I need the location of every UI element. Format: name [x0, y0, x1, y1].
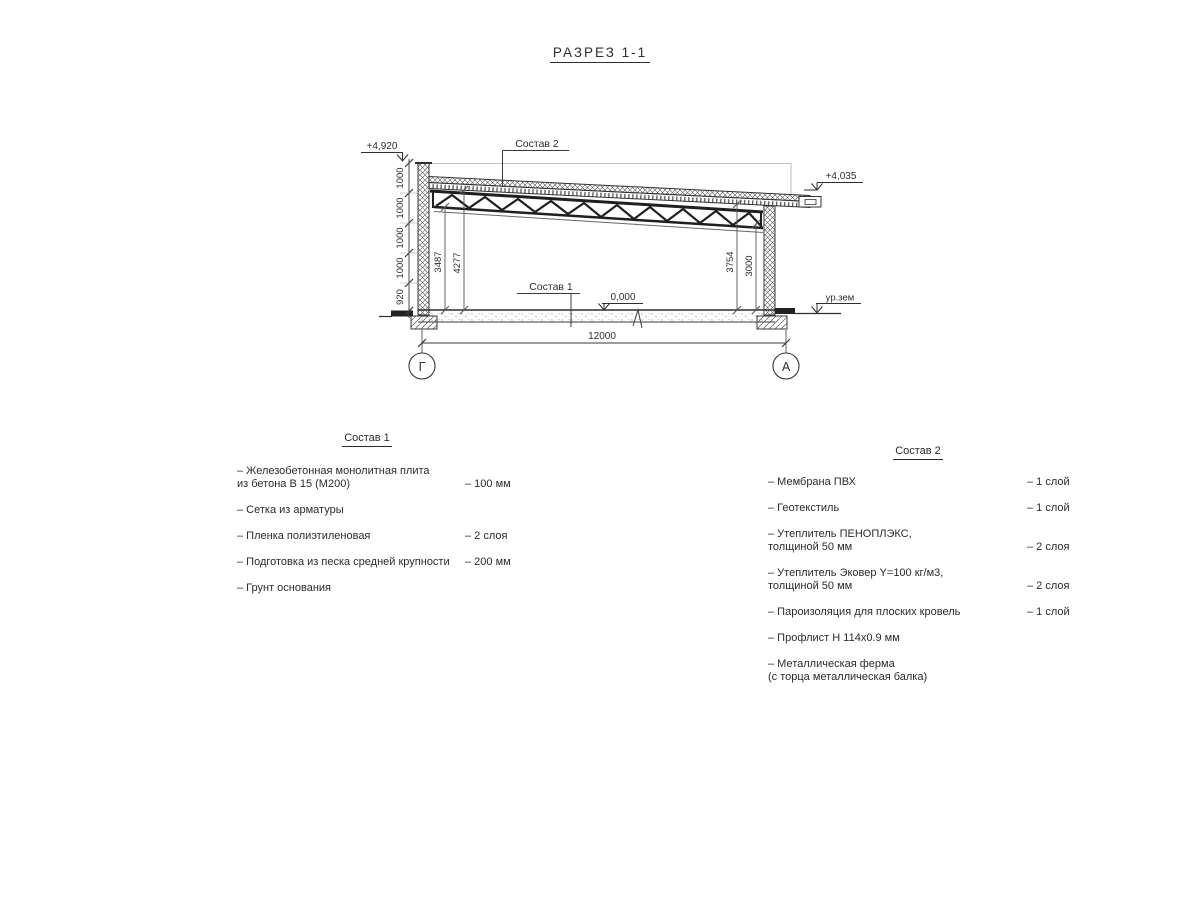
composition-2-header: Состав 2: [768, 445, 1068, 458]
item-value: – 200 мм: [465, 556, 521, 569]
item-text: – Пленка полиэтиленовая: [237, 530, 465, 543]
item-value: – 2 слоя: [1027, 541, 1070, 554]
dim-interior-3487: 3487: [433, 251, 444, 272]
composition-1-title: Состав 1: [342, 432, 392, 447]
ground-ledge-left: [391, 311, 413, 317]
list-item: – Пароизоляция для плоских кровель – 1 с…: [768, 606, 1070, 619]
item-text: – Утеплитель ПЕНОПЛЭКС,: [768, 528, 1027, 541]
item-text: – Пароизоляция для плоских кровель: [768, 606, 1027, 619]
drawing-sheet: РАЗРЕЗ 1-1: [0, 0, 1200, 900]
list-item: – Подготовка из песка средней крупности …: [237, 556, 523, 569]
list-item: – Сетка из арматуры: [237, 504, 523, 517]
list-item: – Пленка полиэтиленовая – 2 слоя: [237, 530, 523, 543]
item-text: – Профлист Н 114х0.9 мм: [768, 632, 1027, 645]
axis-bubble-left: Г: [409, 353, 435, 379]
list-item: – Железобетонная монолитная плита из бет…: [237, 465, 523, 491]
span-dimension: 12000: [418, 330, 790, 353]
section-drawing: 1000 1000 1000 1000 920 3487 4277 3754 3…: [0, 0, 1200, 420]
item-text: – Мембрана ПВХ: [768, 476, 1027, 489]
ground-level-label: ур.зем: [826, 293, 855, 304]
ground-level-mark: ур.зем: [812, 293, 862, 314]
elevation-top-right-label: +4,035: [826, 171, 857, 182]
dim-interior-3000: 3000: [744, 255, 755, 276]
list-item: – Геотекстиль – 1 слой: [768, 502, 1070, 515]
footing-right: [757, 316, 787, 329]
list-item: – Металлическая ферма (с торца металличе…: [768, 658, 1070, 684]
composition-2-title: Состав 2: [893, 445, 943, 460]
item-text: – Металлическая ферма: [768, 658, 1027, 671]
composition-1-list: Состав 1 – Железобетонная монолитная пли…: [237, 432, 523, 608]
list-item: – Грунт основания: [237, 582, 523, 595]
ground-ledge-right: [775, 308, 795, 314]
dim-left-5: 920: [395, 289, 406, 305]
elevation-top-left-label: +4,920: [367, 141, 398, 152]
interior-dimensions: 3487 4277 3754 3000: [433, 186, 760, 314]
item-value: – 100 мм: [465, 478, 521, 491]
right-wall: [764, 206, 775, 315]
item-text: толщиной 50 мм: [768, 541, 1027, 554]
dim-left-2: 1000: [395, 197, 406, 218]
dim-interior-4277: 4277: [452, 252, 463, 273]
roof-edge-beam: [799, 197, 821, 208]
item-text: из бетона В 15 (М200): [237, 478, 465, 491]
item-value: – 1 слой: [1027, 502, 1070, 515]
item-text: – Грунт основания: [237, 582, 465, 595]
item-text: – Утеплитель Эковер Y=100 кг/м3,: [768, 567, 1027, 580]
elevation-floor-label: 0,000: [610, 292, 635, 303]
axis-right-label: А: [782, 360, 791, 374]
elevation-mark-top-left: +4,920: [361, 141, 408, 161]
callout-floor-label: Состав 1: [529, 281, 573, 293]
elevation-mark-top-right: +4,035: [804, 171, 863, 190]
dimension-chain-left: 1000 1000 1000 1000 920: [395, 159, 418, 318]
item-text: толщиной 50 мм: [768, 580, 1027, 593]
callout-roof-label: Состав 2: [515, 138, 559, 150]
dim-left-3: 1000: [395, 227, 406, 248]
item-text: (с торца металлическая балка): [768, 671, 1027, 684]
item-value: – 2 слоя: [465, 530, 521, 543]
item-value: – 1 слой: [1027, 476, 1070, 489]
item-value: – 2 слоя: [1027, 580, 1070, 593]
axis-bubble-right: А: [773, 353, 799, 379]
dim-interior-3754: 3754: [725, 251, 736, 272]
composition-2-list: Состав 2 – Мембрана ПВХ – 1 слой – Геоте…: [768, 445, 1070, 697]
list-item: – Профлист Н 114х0.9 мм: [768, 632, 1070, 645]
floor-slab: [418, 310, 775, 328]
item-text: – Железобетонная монолитная плита: [237, 465, 465, 478]
list-item: – Утеплитель ПЕНОПЛЭКС, толщиной 50 мм –…: [768, 528, 1070, 554]
footing-left: [411, 316, 437, 329]
item-text: – Геотекстиль: [768, 502, 1027, 515]
elevation-mark-floor: 0,000: [599, 292, 644, 310]
item-text: – Сетка из арматуры: [237, 504, 465, 517]
span-dimension-label: 12000: [588, 331, 616, 342]
dim-left-1: 1000: [395, 167, 406, 188]
list-item: – Мембрана ПВХ – 1 слой: [768, 476, 1070, 489]
item-value: – 1 слой: [1027, 606, 1070, 619]
composition-1-header: Состав 1: [237, 432, 497, 445]
item-text: – Подготовка из песка средней крупности: [237, 556, 465, 569]
dim-left-4: 1000: [395, 257, 406, 278]
axis-left-label: Г: [419, 360, 426, 374]
list-item: – Утеплитель Эковер Y=100 кг/м3, толщино…: [768, 567, 1070, 593]
callout-roof-composition: Состав 2: [503, 138, 570, 187]
